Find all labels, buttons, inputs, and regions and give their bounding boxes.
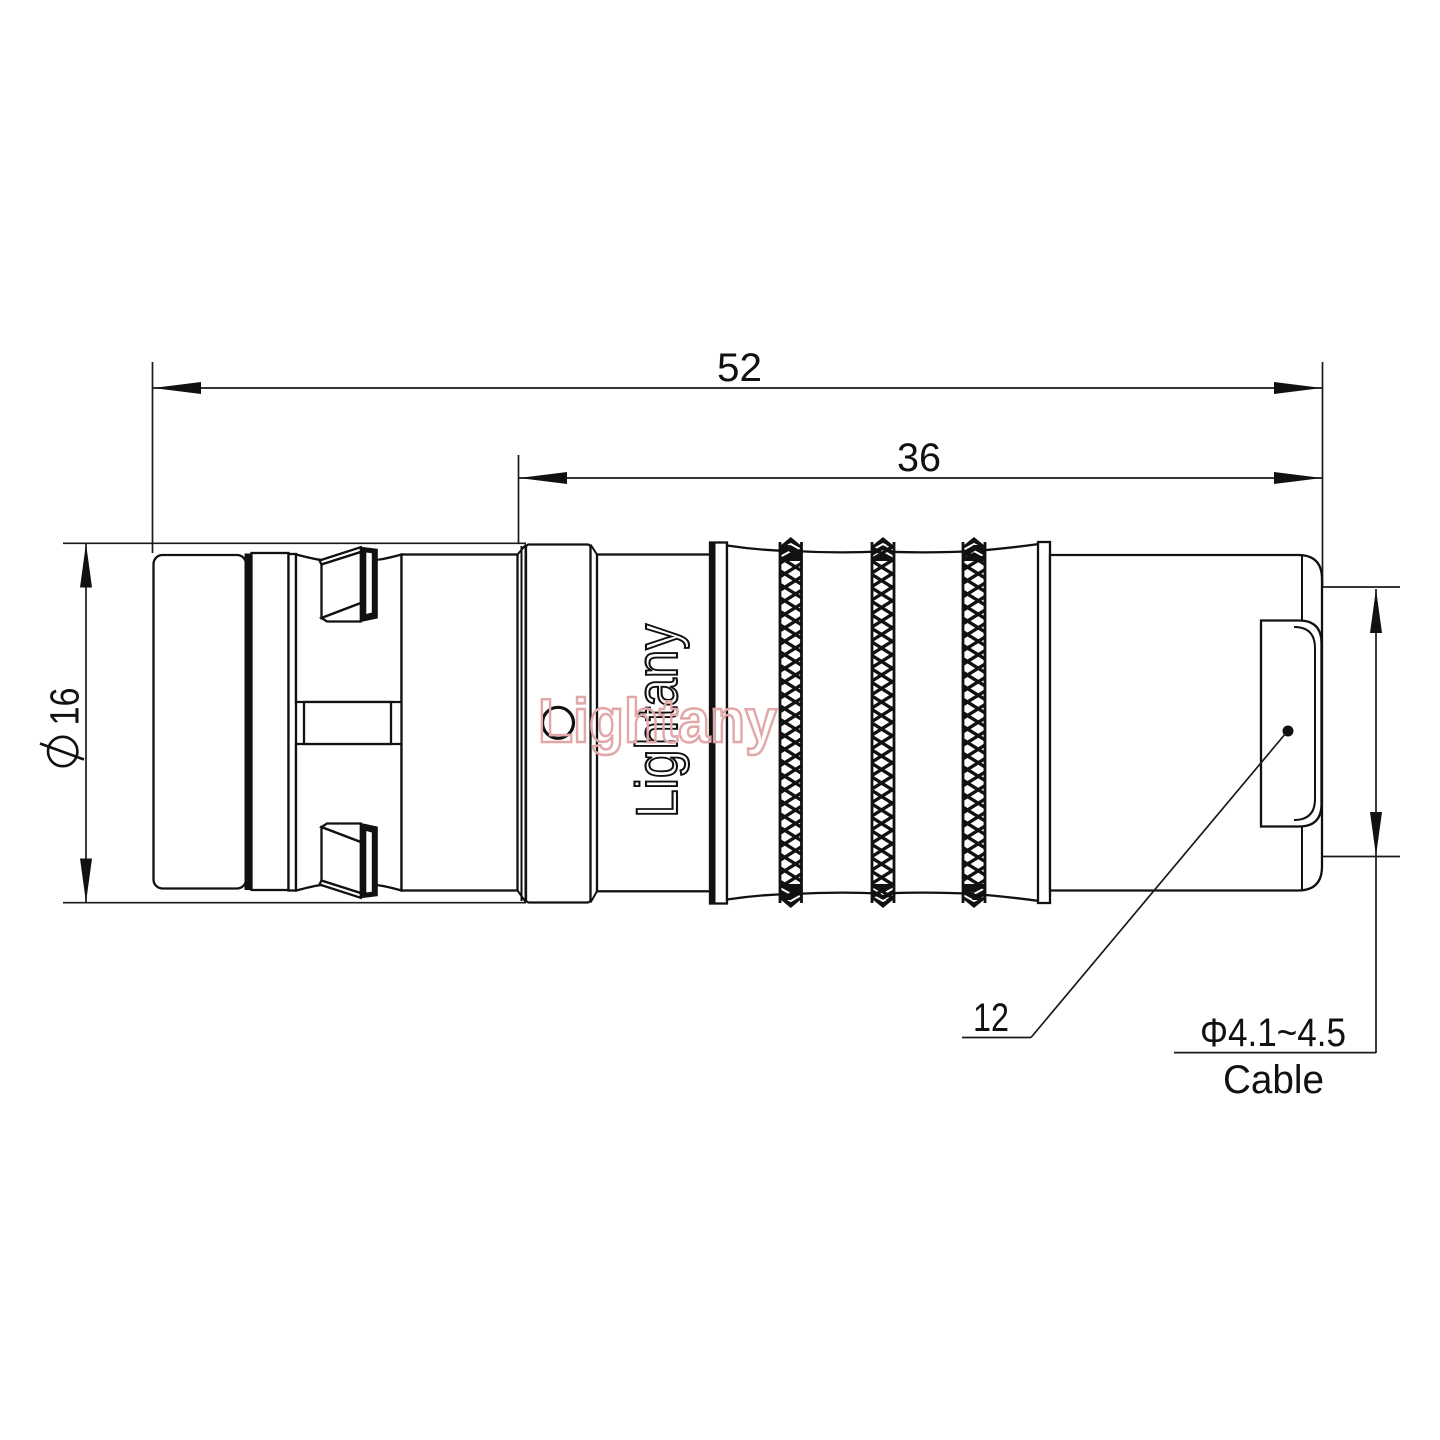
svg-text:12: 12 bbox=[973, 996, 1009, 1040]
svg-text:Cable: Cable bbox=[1223, 1058, 1324, 1102]
svg-text:16: 16 bbox=[42, 688, 88, 726]
svg-text:36: 36 bbox=[897, 436, 941, 480]
svg-text:Lightany: Lightany bbox=[538, 687, 777, 756]
svg-text:52: 52 bbox=[717, 346, 762, 390]
svg-text:Φ4.1~4.5: Φ4.1~4.5 bbox=[1200, 1011, 1346, 1055]
